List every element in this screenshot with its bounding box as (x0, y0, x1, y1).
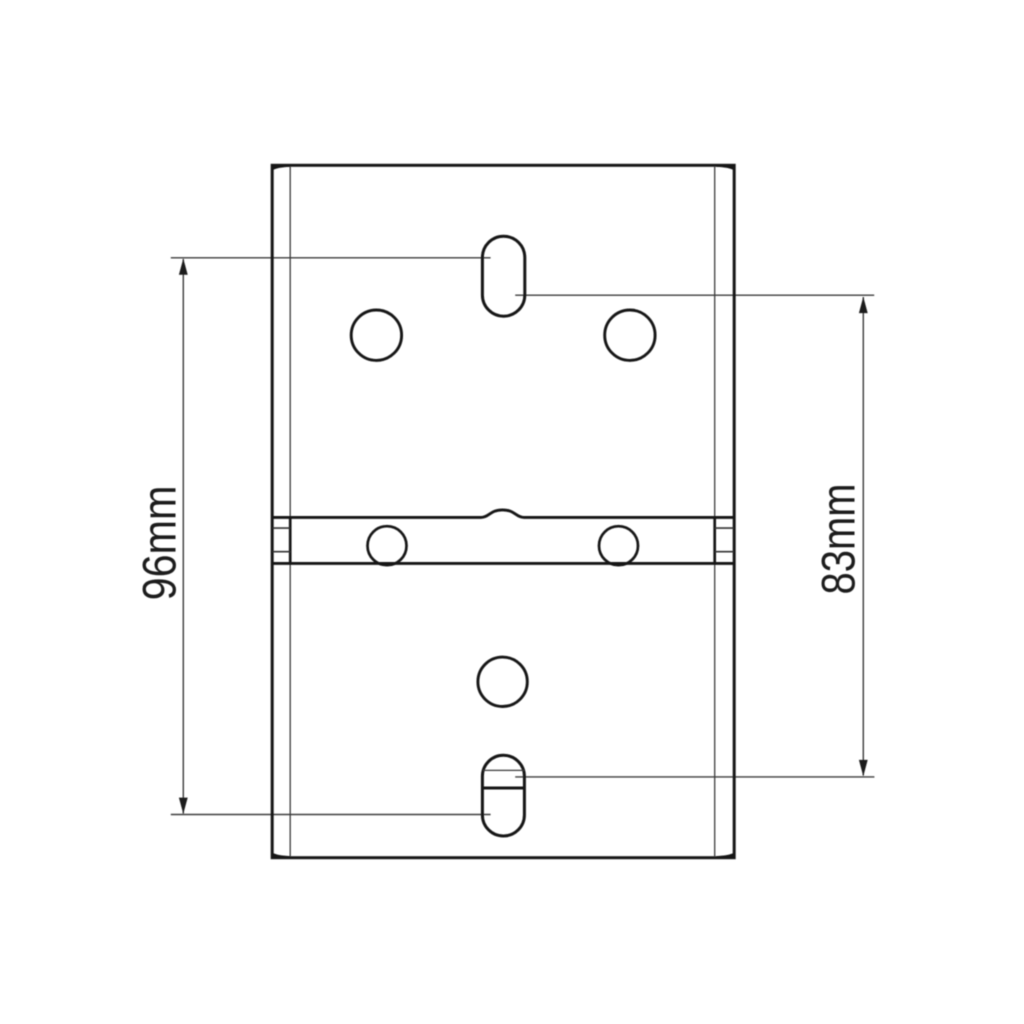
svg-text:96mm: 96mm (134, 486, 186, 601)
svg-text:83mm: 83mm (814, 484, 866, 595)
